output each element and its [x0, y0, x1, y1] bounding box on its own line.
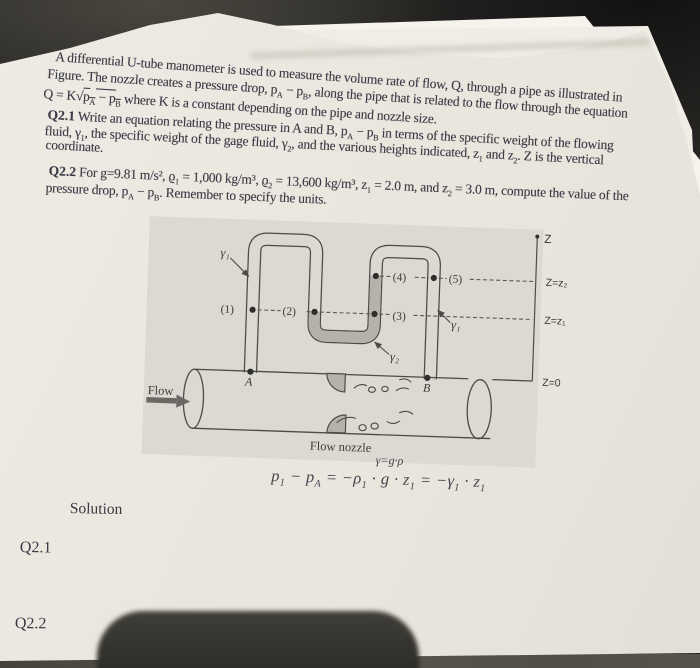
gamma2-label: γ₂ — [390, 350, 400, 364]
label-point-2: (2) — [282, 306, 296, 318]
label-point-b: B — [423, 381, 431, 395]
photo-scene: A differential U-tube manometer is used … — [0, 0, 700, 668]
label-point-1: (1) — [220, 304, 234, 316]
z1-level-label: Z=z₁ — [544, 315, 566, 328]
label-point-3: (3) — [392, 311, 406, 323]
z2-level-label: Z=z₂ — [545, 277, 567, 290]
z0-level-label: Z=0 — [542, 377, 561, 390]
equation-block: γ=g·ρ p1 − pA = −ρ1 · g · z1 = −γ1 · z1 — [271, 450, 487, 492]
flow-label: Flow — [147, 383, 173, 398]
solution-heading: Solution — [70, 500, 123, 519]
q21-line-3: coordinate. — [45, 137, 103, 156]
label-point-5: (5) — [449, 274, 463, 286]
dark-object — [97, 611, 419, 668]
label-point-a: A — [244, 374, 253, 388]
gamma1-right-label: γ₁ — [451, 318, 461, 332]
manometer-figure: (1) (2) (3) (4) (5) A B γ₁ γ₂ γ₁ Z Z=z₂ … — [139, 210, 588, 477]
gamma1-left-label: γ₁ — [220, 246, 230, 260]
gamma-definition-annotation: γ=g·ρ — [376, 453, 487, 471]
z-axis-label: Z — [544, 232, 552, 246]
label-point-4: (4) — [393, 272, 407, 284]
solution-q21-label: Q2.1 — [20, 539, 52, 557]
solution-q22-label: Q2.2 — [15, 615, 47, 633]
